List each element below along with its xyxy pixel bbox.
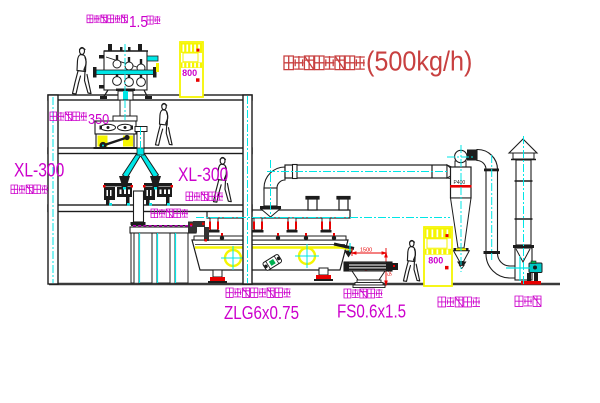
- svg-text:(500kg/h): (500kg/h): [366, 45, 472, 77]
- svg-text:XL-300: XL-300: [14, 159, 64, 181]
- svg-text:800: 800: [428, 256, 443, 266]
- svg-text:1.5: 1.5: [129, 14, 148, 31]
- svg-text:XL-300: XL-300: [178, 163, 228, 185]
- svg-text:1500: 1500: [360, 248, 372, 254]
- svg-text:ZLG6x0.75: ZLG6x0.75: [224, 303, 299, 324]
- svg-text:FS0.6x1.5: FS0.6x1.5: [337, 301, 406, 322]
- svg-text:350: 350: [88, 110, 109, 127]
- svg-text:P400: P400: [454, 180, 466, 186]
- svg-text:800: 800: [182, 68, 197, 78]
